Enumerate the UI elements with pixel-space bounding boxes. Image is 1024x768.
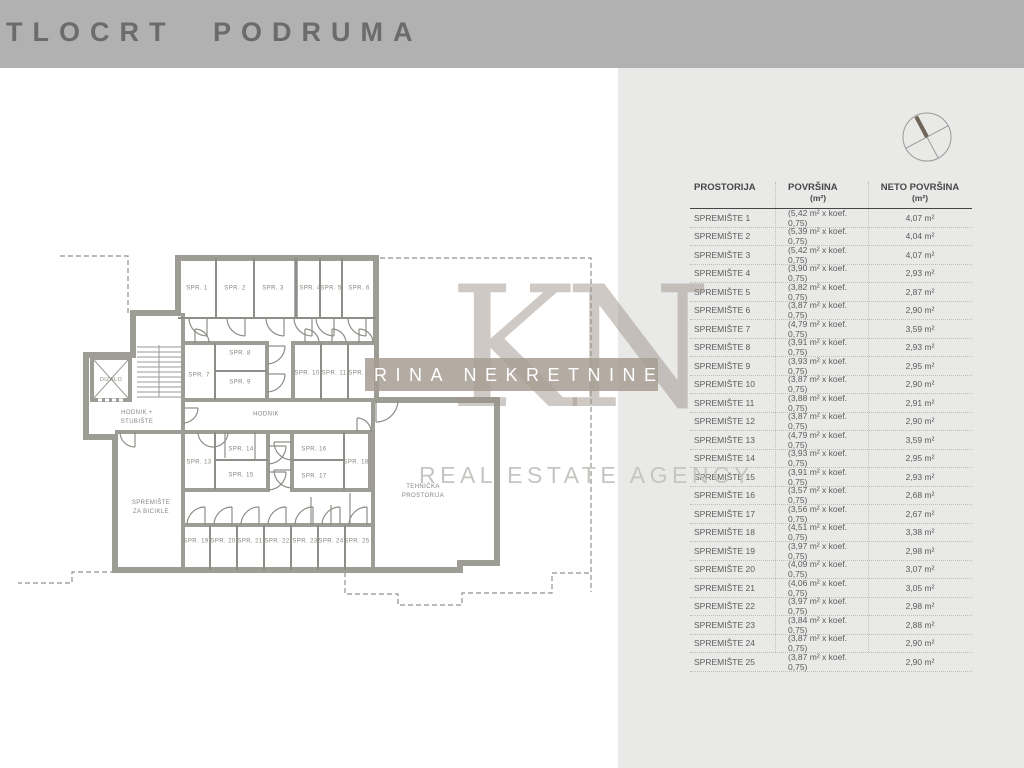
- room-name-cell: SPREMIŠTE 7: [690, 324, 776, 334]
- table-row: SPREMIŠTE 19 (3,97 m² x koef. 0,75) 2,98…: [690, 542, 972, 561]
- room-name-cell: SPREMIŠTE 23: [690, 620, 776, 630]
- table-row: SPREMIŠTE 16 (3,57 m² x koef. 0,75) 2,68…: [690, 487, 972, 506]
- net-area-cell: 2,93 m²: [868, 342, 972, 352]
- room-label: SPR. 25: [344, 538, 369, 547]
- net-area-cell: 3,59 m²: [868, 435, 972, 445]
- area-formula-cell: (5,39 m² x koef. 0,75): [776, 226, 868, 246]
- room-name-cell: SPREMIŠTE 21: [690, 583, 776, 593]
- net-area-cell: 2,98 m²: [868, 546, 972, 556]
- room-label: SPR. 18: [343, 459, 368, 468]
- room-label: SPR. 19: [183, 538, 208, 547]
- room-name-cell: SPREMIŠTE 20: [690, 564, 776, 574]
- table-row: SPREMIŠTE 7 (4,79 m² x koef. 0,75) 3,59 …: [690, 320, 972, 339]
- room-name-cell: SPREMIŠTE 17: [690, 509, 776, 519]
- area-formula-cell: (3,97 m² x koef. 0,75): [776, 596, 868, 616]
- table-row: SPREMIŠTE 22 (3,97 m² x koef. 0,75) 2,98…: [690, 598, 972, 617]
- table-row: SPREMIŠTE 5 (3,82 m² x koef. 0,75) 2,87 …: [690, 283, 972, 302]
- table-header: PROSTORIJA POVRŠINA (m²) NETO POVRŠINA (…: [690, 182, 972, 209]
- room-name-cell: SPREMIŠTE 8: [690, 342, 776, 352]
- area-formula-cell: (5,42 m² x koef. 0,75): [776, 208, 868, 228]
- net-area-cell: 3,38 m²: [868, 527, 972, 537]
- net-area-cell: 2,88 m²: [868, 620, 972, 630]
- room-name-cell: SPREMIŠTE 19: [690, 546, 776, 556]
- column-header-neto-povrsina: NETO POVRŠINA (m²): [868, 182, 972, 203]
- area-formula-cell: (4,79 m² x koef. 0,75): [776, 319, 868, 339]
- net-area-cell: 2,90 m²: [868, 657, 972, 667]
- area-formula-cell: (3,84 m² x koef. 0,75): [776, 615, 868, 635]
- table-row: SPREMIŠTE 13 (4,79 m² x koef. 0,75) 3,59…: [690, 431, 972, 450]
- area-formula-cell: (3,87 m² x koef. 0,75): [776, 374, 868, 394]
- area-formula-cell: (4,51 m² x koef. 0,75): [776, 522, 868, 542]
- net-area-cell: 2,67 m²: [868, 509, 972, 519]
- table-column-divider: [775, 182, 776, 652]
- room-name-cell: SPREMIŠTE 24: [690, 638, 776, 648]
- room-label: SPR. 5: [320, 285, 341, 294]
- net-area-cell: 2,93 m²: [868, 472, 972, 482]
- area-formula-cell: (3,91 m² x koef. 0,75): [776, 337, 868, 357]
- area-formula-cell: (5,42 m² x koef. 0,75): [776, 245, 868, 265]
- room-name-cell: SPREMIŠTE 22: [690, 601, 776, 611]
- area-formula-cell: (3,82 m² x koef. 0,75): [776, 282, 868, 302]
- room-name-cell: SPREMIŠTE 10: [690, 379, 776, 389]
- room-name-cell: SPREMIŠTE 13: [690, 435, 776, 445]
- table-row: SPREMIŠTE 21 (4,06 m² x koef. 0,75) 3,05…: [690, 579, 972, 598]
- table-row: SPREMIŠTE 3 (5,42 m² x koef. 0,75) 4,07 …: [690, 246, 972, 265]
- room-name-cell: SPREMIŠTE 3: [690, 250, 776, 260]
- room-name-cell: SPREMIŠTE 12: [690, 416, 776, 426]
- net-area-cell: 2,68 m²: [868, 490, 972, 500]
- room-label: SPR. 4: [299, 285, 320, 294]
- room-label: SPR. 8: [229, 350, 250, 359]
- corridor-stairs-label: HODNIK + STUBIŠTE: [121, 409, 154, 427]
- area-formula-cell: (3,87 m² x koef. 0,75): [776, 633, 868, 653]
- table-column-divider: [868, 182, 869, 652]
- floorplan-sheet: TLOCRT PODRUMA: [0, 0, 1024, 768]
- room-label: SPR. 17: [301, 473, 326, 482]
- room-label: SPR. 15: [228, 472, 253, 481]
- net-area-cell: 2,91 m²: [868, 398, 972, 408]
- net-area-cell: 3,05 m²: [868, 583, 972, 593]
- table-body: SPREMIŠTE 1 (5,42 m² x koef. 0,75) 4,07 …: [690, 209, 972, 672]
- room-name-cell: SPREMIŠTE 5: [690, 287, 776, 297]
- room-name-cell: SPREMIŠTE 9: [690, 361, 776, 371]
- net-area-cell: 4,04 m²: [868, 231, 972, 241]
- area-formula-cell: (4,09 m² x koef. 0,75): [776, 559, 868, 579]
- area-table: PROSTORIJA POVRŠINA (m²) NETO POVRŠINA (…: [690, 182, 972, 672]
- table-row: SPREMIŠTE 25 (3,87 m² x koef. 0,75) 2,90…: [690, 653, 972, 672]
- room-name-cell: SPREMIŠTE 18: [690, 527, 776, 537]
- room-label: SPR. 3: [262, 285, 283, 294]
- elevator-label: DIZALO: [100, 376, 122, 384]
- area-formula-cell: (3,87 m² x koef. 0,75): [776, 411, 868, 431]
- net-area-cell: 2,90 m²: [868, 638, 972, 648]
- table-row: SPREMIŠTE 11 (3,88 m² x koef. 0,75) 2,91…: [690, 394, 972, 413]
- net-area-cell: 2,93 m²: [868, 268, 972, 278]
- room-label: SPR. 22: [264, 538, 289, 547]
- table-row: SPREMIŠTE 6 (3,87 m² x koef. 0,75) 2,90 …: [690, 302, 972, 321]
- net-area-cell: 4,07 m²: [868, 250, 972, 260]
- room-label: SPR. 7: [188, 372, 209, 381]
- table-row: SPREMIŠTE 18 (4,51 m² x koef. 0,75) 3,38…: [690, 524, 972, 543]
- column-header-povrsina: POVRŠINA (m²): [776, 182, 868, 203]
- table-row: SPREMIŠTE 20 (4,09 m² x koef. 0,75) 3,07…: [690, 561, 972, 580]
- net-area-cell: 3,07 m²: [868, 564, 972, 574]
- area-formula-cell: (3,93 m² x koef. 0,75): [776, 448, 868, 468]
- room-name-cell: SPREMIŠTE 6: [690, 305, 776, 315]
- table-row: SPREMIŠTE 2 (5,39 m² x koef. 0,75) 4,04 …: [690, 228, 972, 247]
- net-area-cell: 2,98 m²: [868, 601, 972, 611]
- table-row: SPREMIŠTE 4 (3,90 m² x koef. 0,75) 2,93 …: [690, 265, 972, 284]
- area-formula-cell: (3,56 m² x koef. 0,75): [776, 504, 868, 524]
- table-row: SPREMIŠTE 17 (3,56 m² x koef. 0,75) 2,67…: [690, 505, 972, 524]
- room-label: SPR. 23: [292, 538, 317, 547]
- area-formula-cell: (3,87 m² x koef. 0,75): [776, 652, 868, 672]
- agency-monogram: KN: [449, 264, 702, 432]
- area-formula-cell: (3,93 m² x koef. 0,75): [776, 356, 868, 376]
- area-formula-cell: (3,90 m² x koef. 0,75): [776, 263, 868, 283]
- room-label: SPR. 20: [210, 538, 235, 547]
- net-area-cell: 2,90 m²: [868, 416, 972, 426]
- net-area-cell: 2,90 m²: [868, 379, 972, 389]
- net-area-cell: 3,59 m²: [868, 324, 972, 334]
- area-formula-cell: (4,06 m² x koef. 0,75): [776, 578, 868, 598]
- agency-name-band: RINA NEKRETNINE: [365, 358, 658, 391]
- room-label: SPR. 6: [348, 285, 369, 294]
- net-area-cell: 2,90 m²: [868, 305, 972, 315]
- room-label: SPR. 1: [186, 285, 207, 294]
- table-row: SPREMIŠTE 9 (3,93 m² x koef. 0,75) 2,95 …: [690, 357, 972, 376]
- area-formula-cell: (3,91 m² x koef. 0,75): [776, 467, 868, 487]
- room-label: SPR. 24: [318, 538, 343, 547]
- area-formula-cell: (3,97 m² x koef. 0,75): [776, 541, 868, 561]
- table-row: SPREMIŠTE 8 (3,91 m² x koef. 0,75) 2,93 …: [690, 339, 972, 358]
- room-label: SPR. 14: [228, 446, 253, 455]
- table-row: SPREMIŠTE 1 (5,42 m² x koef. 0,75) 4,07 …: [690, 209, 972, 228]
- net-area-cell: 4,07 m²: [868, 213, 972, 223]
- room-label: SPR. 21: [237, 538, 262, 547]
- room-label: SPR. 13: [186, 459, 211, 468]
- table-row: SPREMIŠTE 12 (3,87 m² x koef. 0,75) 2,90…: [690, 413, 972, 432]
- room-label: SPR. 11: [322, 370, 347, 379]
- room-label: SPR. 2: [224, 285, 245, 294]
- area-formula-cell: (3,57 m² x koef. 0,75): [776, 485, 868, 505]
- room-name-cell: SPREMIŠTE 2: [690, 231, 776, 241]
- area-formula-cell: (3,88 m² x koef. 0,75): [776, 393, 868, 413]
- table-row: SPREMIŠTE 10 (3,87 m² x koef. 0,75) 2,90…: [690, 376, 972, 395]
- table-row: SPREMIŠTE 24 (3,87 m² x koef. 0,75) 2,90…: [690, 635, 972, 654]
- corridor-label: HODNIK: [253, 411, 279, 420]
- area-formula-cell: (4,79 m² x koef. 0,75): [776, 430, 868, 450]
- room-name-cell: SPREMIŠTE 4: [690, 268, 776, 278]
- agency-subtitle: REAL ESTATE AGENCY: [419, 462, 754, 489]
- area-formula-cell: (3,87 m² x koef. 0,75): [776, 300, 868, 320]
- room-name-cell: SPREMIŠTE 16: [690, 490, 776, 500]
- room-name-cell: SPREMIŠTE 1: [690, 213, 776, 223]
- bike-storage-label: SPREMIŠTE ZA BICIKLE: [132, 499, 170, 517]
- net-area-cell: 2,95 m²: [868, 453, 972, 463]
- table-row: SPREMIŠTE 23 (3,84 m² x koef. 0,75) 2,88…: [690, 616, 972, 635]
- net-area-cell: 2,87 m²: [868, 287, 972, 297]
- room-label: SPR. 16: [301, 446, 326, 455]
- room-name-cell: SPREMIŠTE 11: [690, 398, 776, 408]
- room-label: SPR. 10: [294, 370, 319, 379]
- room-label: SPR. 9: [229, 379, 250, 388]
- room-name-cell: SPREMIŠTE 25: [690, 657, 776, 667]
- column-header-prostorija: PROSTORIJA: [690, 182, 776, 203]
- net-area-cell: 2,95 m²: [868, 361, 972, 371]
